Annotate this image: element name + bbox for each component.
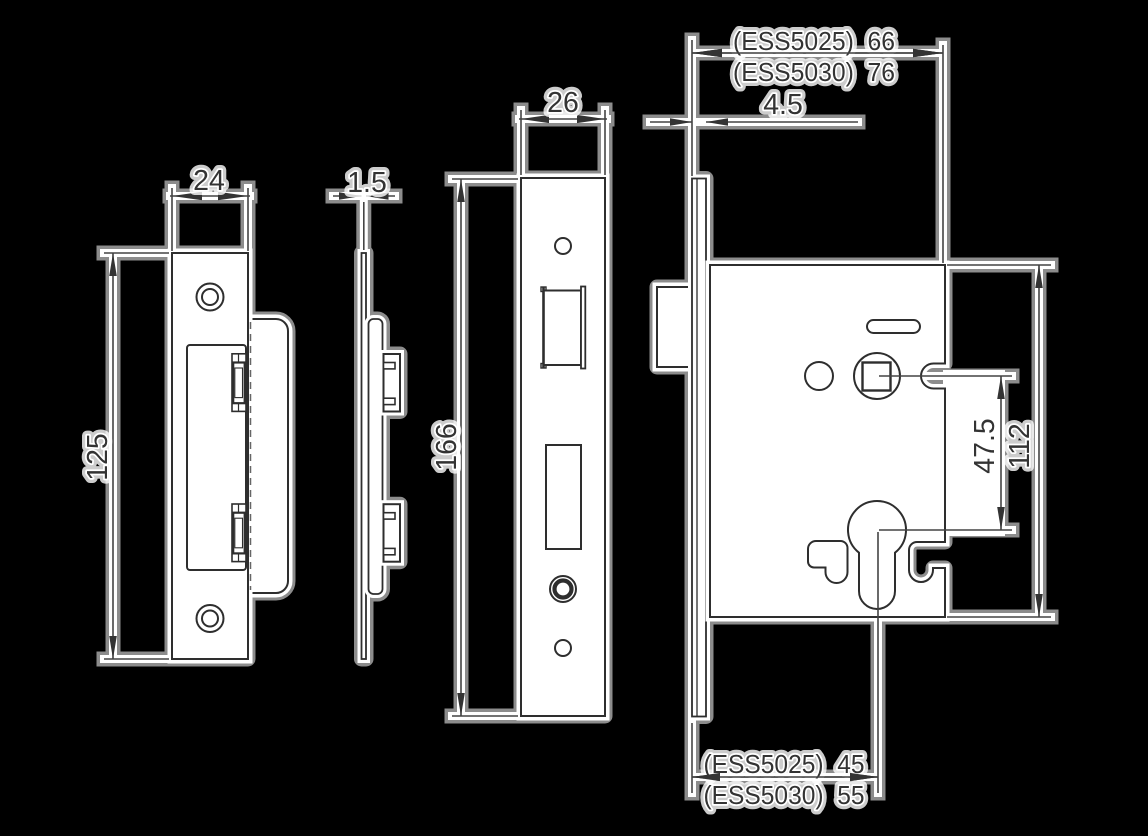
svg-text:47.5: 47.5 [969,418,1001,473]
svg-text:4.5: 4.5 [763,89,803,121]
svg-text:(ESS5025) 66: (ESS5025) 66 [733,26,895,56]
svg-text:125: 125 [82,433,114,481]
svg-text:(ESS5030) 55: (ESS5030) 55 [704,780,865,810]
svg-text:(ESS5030) 76: (ESS5030) 76 [733,57,895,87]
svg-text:1.5: 1.5 [347,167,387,199]
svg-text:166: 166 [431,423,463,471]
svg-text:(ESS5025) 45: (ESS5025) 45 [704,749,865,779]
svg-text:24: 24 [193,165,225,197]
svg-text:26: 26 [547,87,579,119]
svg-text:112: 112 [1004,423,1036,468]
